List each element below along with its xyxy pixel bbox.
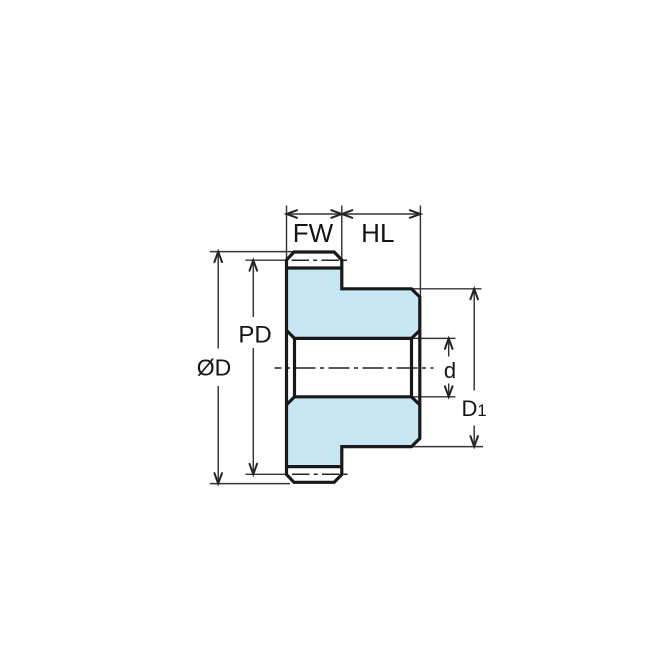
svg-text:HL: HL bbox=[361, 218, 394, 248]
svg-text:ØD: ØD bbox=[197, 355, 232, 381]
svg-text:FW: FW bbox=[293, 218, 334, 248]
svg-text:d: d bbox=[444, 358, 456, 383]
svg-text:PD: PD bbox=[238, 322, 271, 349]
